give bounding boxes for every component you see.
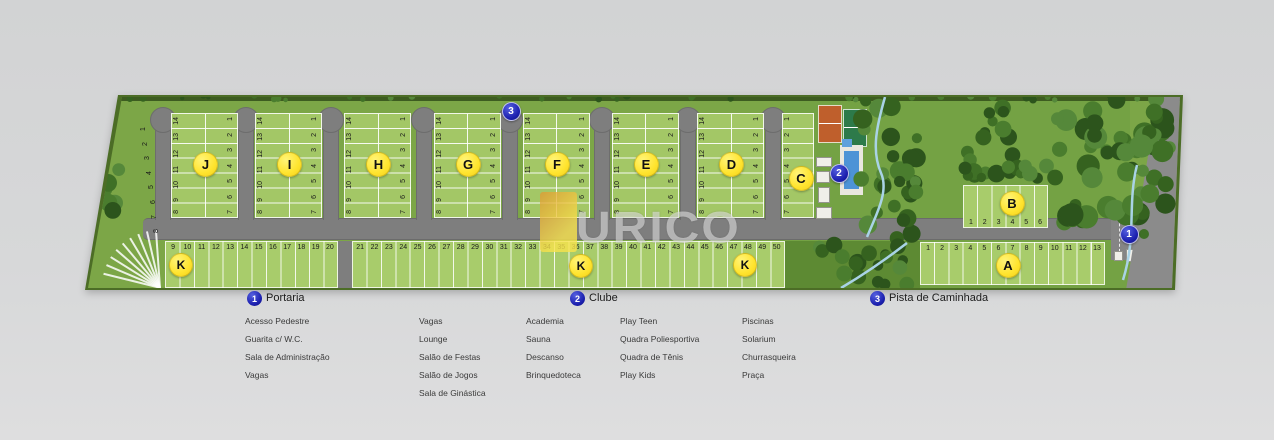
- lot-number: 14: [436, 117, 445, 125]
- legend-item: Sauna: [526, 334, 551, 344]
- lot-number: 2: [579, 133, 588, 137]
- lot-number: 10: [257, 181, 266, 189]
- lot-number: 6: [311, 195, 320, 199]
- legend-item: Sala de Administração: [245, 352, 330, 362]
- lot-number: 9: [346, 198, 355, 202]
- lot-number: 49: [755, 244, 769, 251]
- block-circle-E: E: [634, 152, 659, 177]
- lot-number: 13: [346, 133, 355, 141]
- lot-number: 5: [311, 179, 320, 183]
- lot-number: 25: [410, 244, 424, 251]
- legend-item: Play Teen: [620, 316, 657, 326]
- lot-number: 3: [992, 219, 1006, 226]
- lot-number: 6: [668, 195, 677, 199]
- lot-number: 3: [227, 148, 236, 152]
- lot-number: 12: [257, 150, 266, 158]
- lot-number: 23: [382, 244, 396, 251]
- lot-number: 26: [425, 244, 439, 251]
- map-marker-1-portaria: 1: [1120, 225, 1139, 244]
- lot-number: 15: [252, 244, 266, 251]
- lot-number: 10: [173, 181, 182, 189]
- lot-number: 2: [311, 133, 320, 137]
- lot-number: 8: [525, 210, 534, 214]
- block-F-left-lot-numbers: 141312111098: [525, 114, 534, 217]
- lot-number: 11: [699, 166, 708, 173]
- lot-number: 4: [146, 167, 155, 179]
- block-B-lot-numbers: 123456: [964, 219, 1047, 226]
- lot-number: 3: [949, 245, 963, 252]
- lot-number: 2: [400, 133, 409, 137]
- lot-number: 6: [400, 195, 409, 199]
- lot-number: 13: [525, 133, 534, 141]
- lot-number: 5: [1019, 219, 1033, 226]
- lot-number: 33: [525, 244, 539, 251]
- lot-number: 11: [1062, 245, 1076, 252]
- lot-number: 4: [490, 164, 499, 168]
- legend-item: Play Kids: [620, 370, 655, 380]
- lot-number: 5: [148, 181, 157, 193]
- lot-number: 2: [978, 219, 992, 226]
- lot-number: 8: [436, 210, 445, 214]
- legend-title-pista-de-caminhada: Pista de Caminhada: [889, 292, 988, 304]
- lot-number: 48: [741, 244, 755, 251]
- block-circle-A: A: [996, 253, 1021, 278]
- lot-number: 11: [525, 166, 534, 173]
- legend-title-clube: Clube: [589, 292, 618, 304]
- block-C-lot-numbers: 1234567: [784, 114, 793, 217]
- lot-number: 1: [227, 117, 236, 121]
- legend-item: Salão de Festas: [419, 352, 480, 362]
- lot-number: 3: [400, 148, 409, 152]
- watermark-text: URICO: [576, 203, 741, 254]
- lot-number: 6: [1033, 219, 1047, 226]
- site-plan: 1413121110981234567141312111098123456714…: [85, 95, 1185, 290]
- block-K-strip-a-numbers: 91011121314151617181920: [166, 244, 337, 251]
- lot-number: 12: [614, 150, 623, 158]
- block-circle-F: F: [545, 152, 570, 177]
- lot-number: 5: [977, 245, 991, 252]
- legend-marker-3: 3: [870, 291, 885, 306]
- lot-number: 12: [699, 150, 708, 158]
- block-circle-K: K: [733, 253, 757, 277]
- lot-number: 9: [614, 198, 623, 202]
- legend-item: Descanso: [526, 352, 564, 362]
- lot-number: 21: [353, 244, 367, 251]
- lot-number: 9: [166, 244, 180, 251]
- lot-number: 14: [525, 117, 534, 125]
- lot-number: 2: [784, 133, 793, 137]
- lot-number: 9: [257, 198, 266, 202]
- lot-number: 10: [614, 181, 623, 189]
- lot-number: 6: [991, 245, 1005, 252]
- lot-number: 50: [769, 244, 783, 251]
- lot-number: 5: [579, 179, 588, 183]
- site-plan-ground: 1413121110981234567141312111098123456714…: [85, 95, 1185, 290]
- k-strip-road-gap: [338, 241, 352, 288]
- club-building: [816, 171, 830, 183]
- lot-number: 3: [579, 148, 588, 152]
- lot-number: 6: [579, 195, 588, 199]
- lot-number: 3: [668, 148, 677, 152]
- block-circle-C: C: [789, 166, 814, 191]
- block-circle-K: K: [569, 254, 593, 278]
- lot-number: 4: [227, 164, 236, 168]
- block-H-right-lot-numbers: 1234567: [400, 114, 409, 217]
- lot-number: 4: [400, 164, 409, 168]
- lot-number: 11: [257, 166, 266, 173]
- lot-number: 12: [436, 150, 445, 158]
- club-building: [816, 157, 832, 167]
- lot-number: 14: [346, 117, 355, 125]
- legend-item: Salão de Jogos: [419, 370, 478, 380]
- lot-number: 11: [346, 166, 355, 173]
- street-8-stem: [765, 123, 781, 220]
- lot-number: 12: [173, 150, 182, 158]
- lot-number: 10: [525, 181, 534, 189]
- lot-number: 5: [668, 179, 677, 183]
- lot-number: 6: [784, 195, 793, 199]
- lot-number: 3: [784, 148, 793, 152]
- lot-number: 7: [151, 211, 160, 223]
- lot-number: 29: [468, 244, 482, 251]
- lot-number: 9: [525, 198, 534, 202]
- legend-item: Vagas: [245, 370, 268, 380]
- lot-number: 31: [497, 244, 511, 251]
- lot-number: 8: [346, 210, 355, 214]
- block-circle-D: D: [719, 152, 744, 177]
- lot-number: 1: [964, 219, 978, 226]
- lower-grove-zone: [785, 241, 920, 290]
- legend-item: Brinquedoteca: [526, 370, 581, 380]
- lot-number: 14: [614, 117, 623, 125]
- lot-number: 11: [614, 166, 623, 173]
- lot-number: 12: [346, 150, 355, 158]
- lot-number: 12: [525, 150, 534, 158]
- block-E-left-lot-numbers: 141312111098: [614, 114, 623, 217]
- lot-number: 8: [173, 210, 182, 214]
- lot-number: 3: [753, 148, 762, 152]
- lot-number: 13: [257, 133, 266, 141]
- legend-item: Piscinas: [742, 316, 774, 326]
- street-3-stem: [323, 123, 339, 220]
- legend-item: Academia: [526, 316, 564, 326]
- block-circle-J: J: [193, 152, 218, 177]
- street-5-stem: [502, 123, 518, 220]
- lot-number: 3: [311, 148, 320, 152]
- lot-number: 1: [490, 117, 499, 121]
- lot-number: 6: [753, 195, 762, 199]
- lot-number: 12: [209, 244, 223, 251]
- legend-item: Sala de Ginástica: [419, 388, 486, 398]
- lot-number: 1: [579, 117, 588, 121]
- legend-marker-1: 1: [247, 291, 262, 306]
- lot-number: 7: [753, 210, 762, 214]
- lot-number: 7: [400, 210, 409, 214]
- lot-number: 4: [668, 164, 677, 168]
- lot-number: 13: [223, 244, 237, 251]
- lot-number: 4: [311, 164, 320, 168]
- lot-number: 1: [400, 117, 409, 121]
- pool-small: [842, 139, 852, 147]
- lot-number: 2: [142, 138, 151, 150]
- block-circle-B: B: [1000, 191, 1025, 216]
- block-D-left-lot-numbers: 141312111098: [699, 114, 708, 217]
- lot-number: 10: [180, 244, 194, 251]
- lot-number: 14: [173, 117, 182, 125]
- watermark-logo-mark: [540, 192, 577, 252]
- legend-item: Quadra Poliesportiva: [620, 334, 699, 344]
- lot-number: 2: [668, 133, 677, 137]
- lot-number: 5: [753, 179, 762, 183]
- block-E-right-lot-numbers: 1234567: [668, 114, 677, 217]
- lot-number: 4: [579, 164, 588, 168]
- lot-number: 14: [257, 117, 266, 125]
- lot-number: 10: [436, 181, 445, 189]
- lot-number: 9: [1034, 245, 1048, 252]
- lot-number: 13: [173, 133, 182, 141]
- legend-item: Quadra de Tênis: [620, 352, 683, 362]
- legend-item: Churrasqueira: [742, 352, 796, 362]
- lot-number: 8: [1020, 245, 1034, 252]
- legend-item: Solarium: [742, 334, 776, 344]
- block-A-lot-numbers: 12345678910111213: [921, 245, 1104, 252]
- lot-number: 9: [436, 198, 445, 202]
- street-2-stem: [238, 123, 254, 220]
- legend-item: Praça: [742, 370, 764, 380]
- lot-number: 18: [294, 244, 308, 251]
- lot-number: 32: [511, 244, 525, 251]
- lot-number: 24: [396, 244, 410, 251]
- lot-number: 14: [699, 117, 708, 125]
- legend-marker-2: 2: [570, 291, 585, 306]
- lot-number: 13: [1090, 245, 1104, 252]
- tennis-midline: [844, 127, 866, 128]
- lot-number: 8: [153, 225, 162, 237]
- lot-number: 27: [439, 244, 453, 251]
- lot-number: 16: [266, 244, 280, 251]
- lot-number: 8: [257, 210, 266, 214]
- club-building: [816, 207, 832, 219]
- block-circle-G: G: [456, 152, 481, 177]
- lot-number: 2: [490, 133, 499, 137]
- block-D-right-lot-numbers: 1234567: [753, 114, 762, 217]
- lot-number: 7: [490, 210, 499, 214]
- court-midline: [819, 123, 841, 124]
- lot-number: 2: [935, 245, 949, 252]
- block-circle-H: H: [366, 152, 391, 177]
- block-J-right-lot-numbers: 1234567: [227, 114, 236, 217]
- lot-number: 28: [454, 244, 468, 251]
- lot-number: 1: [784, 117, 793, 121]
- lot-number: 1: [668, 117, 677, 121]
- lot-number: 6: [490, 195, 499, 199]
- lot-number: 11: [195, 244, 209, 251]
- map-marker-3-pista-de-caminhada: 3: [502, 102, 521, 121]
- lot-number: 2: [753, 133, 762, 137]
- lot-number: 7: [1005, 245, 1019, 252]
- legend-item: Vagas: [419, 316, 442, 326]
- block-J-left-lot-numbers: 141312111098: [173, 114, 182, 217]
- gatehouse-building: [1114, 251, 1123, 261]
- masterplan-image: 1413121110981234567141312111098123456714…: [0, 0, 1274, 440]
- lot-number: 4: [1005, 219, 1019, 226]
- lot-number: 10: [346, 181, 355, 189]
- lot-number: 1: [311, 117, 320, 121]
- lot-number: 6: [227, 195, 236, 199]
- lot-number: 10: [1048, 245, 1062, 252]
- sports-court: [818, 105, 842, 143]
- lot-number: 4: [963, 245, 977, 252]
- legend-item: Lounge: [419, 334, 447, 344]
- lot-number: 7: [227, 210, 236, 214]
- block-H-left-lot-numbers: 141312111098: [346, 114, 355, 217]
- legend-item: Acesso Pedestre: [245, 316, 309, 326]
- lot-number: 7: [784, 210, 793, 214]
- lot-number: 5: [490, 179, 499, 183]
- lot-number: 20: [323, 244, 337, 251]
- lot-number: 9: [699, 198, 708, 202]
- lot-number: 22: [367, 244, 381, 251]
- legend-title-portaria: Portaria: [266, 292, 305, 304]
- street-4-stem: [416, 123, 432, 220]
- lot-number: 3: [144, 152, 153, 164]
- block-circle-K: K: [169, 253, 193, 277]
- lot-number: 1: [921, 245, 935, 252]
- lot-number: 7: [311, 210, 320, 214]
- block-F-right-lot-numbers: 1234567: [579, 114, 588, 217]
- lot-number: 4: [753, 164, 762, 168]
- lot-number: 5: [400, 179, 409, 183]
- lot-number: 6: [150, 196, 159, 208]
- lot-number: 19: [309, 244, 323, 251]
- lot-number: 1: [753, 117, 762, 121]
- lot-number: 10: [699, 181, 708, 189]
- lot-number: 14: [237, 244, 251, 251]
- map-marker-2-clube: 2: [830, 164, 849, 183]
- lot-number: 13: [699, 133, 708, 141]
- lot-number: 11: [173, 166, 182, 173]
- lot-number: 13: [436, 133, 445, 141]
- lot-number: 30: [482, 244, 496, 251]
- lot-number: 1: [140, 123, 149, 135]
- lot-number: 12: [1076, 245, 1090, 252]
- lot-number: 3: [490, 148, 499, 152]
- lot-number: 11: [436, 166, 445, 173]
- lot-number: 17: [280, 244, 294, 251]
- block-circle-I: I: [277, 152, 302, 177]
- lot-number: 9: [173, 198, 182, 202]
- lot-number: 5: [227, 179, 236, 183]
- block-G-right-lot-numbers: 1234567: [490, 114, 499, 217]
- block-G-left-lot-numbers: 141312111098: [436, 114, 445, 217]
- legend-item: Guarita c/ W.C.: [245, 334, 303, 344]
- block-I-left-lot-numbers: 141312111098: [257, 114, 266, 217]
- lot-number: 13: [614, 133, 623, 141]
- lot-number: 4: [784, 164, 793, 168]
- block-I-right-lot-numbers: 1234567: [311, 114, 320, 217]
- lot-number: 2: [227, 133, 236, 137]
- club-building: [818, 187, 830, 203]
